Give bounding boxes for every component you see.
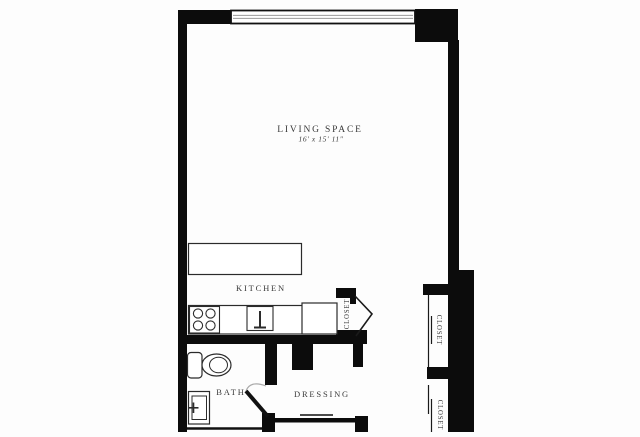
wall-dressing-stub <box>353 343 363 367</box>
wall-top-right-corner <box>415 9 458 42</box>
wall-dressing-left <box>292 343 313 370</box>
living-space-dimensions: 16' x 15' 11" <box>298 135 343 144</box>
closet-label-upper-right: CLOSET <box>435 315 442 346</box>
toilet-bowl-inner <box>210 357 228 373</box>
wall-kitchen-closet-bottom <box>336 330 367 344</box>
kitchen-label: KITCHEN <box>236 283 286 293</box>
bathroom-sink <box>189 392 210 425</box>
window-frame <box>231 11 415 24</box>
wall-bath-jamb <box>265 343 277 385</box>
bath-label: BATH <box>216 387 245 397</box>
closet-label-lower-right: CLOSET <box>436 400 443 431</box>
toilet <box>188 353 232 379</box>
dressing-label: DRESSING <box>294 389 350 399</box>
wall-dressing-bottom <box>267 418 360 423</box>
kitchen-island <box>189 244 302 275</box>
floor-plan: LIVING SPACE 16' x 15' 11" KITCHEN BATH … <box>0 0 640 432</box>
wall-under-counter <box>178 335 338 344</box>
wall-top-left <box>178 10 231 24</box>
background <box>0 0 640 432</box>
window <box>231 11 415 24</box>
wall-right-upper <box>448 40 459 272</box>
closet-label-kitchen: CLOSET <box>344 299 351 330</box>
wall-closet1-top <box>423 284 450 295</box>
wall-right-lower <box>448 270 474 432</box>
refrigerator <box>302 303 337 334</box>
wall-closet1-bottom <box>427 367 452 379</box>
floor-plan-page: LIVING SPACE 16' x 15' 11" KITCHEN BATH … <box>0 0 640 432</box>
living-space-label: LIVING SPACE <box>277 125 362 135</box>
wall-left <box>178 10 187 432</box>
toilet-tank <box>188 353 203 379</box>
